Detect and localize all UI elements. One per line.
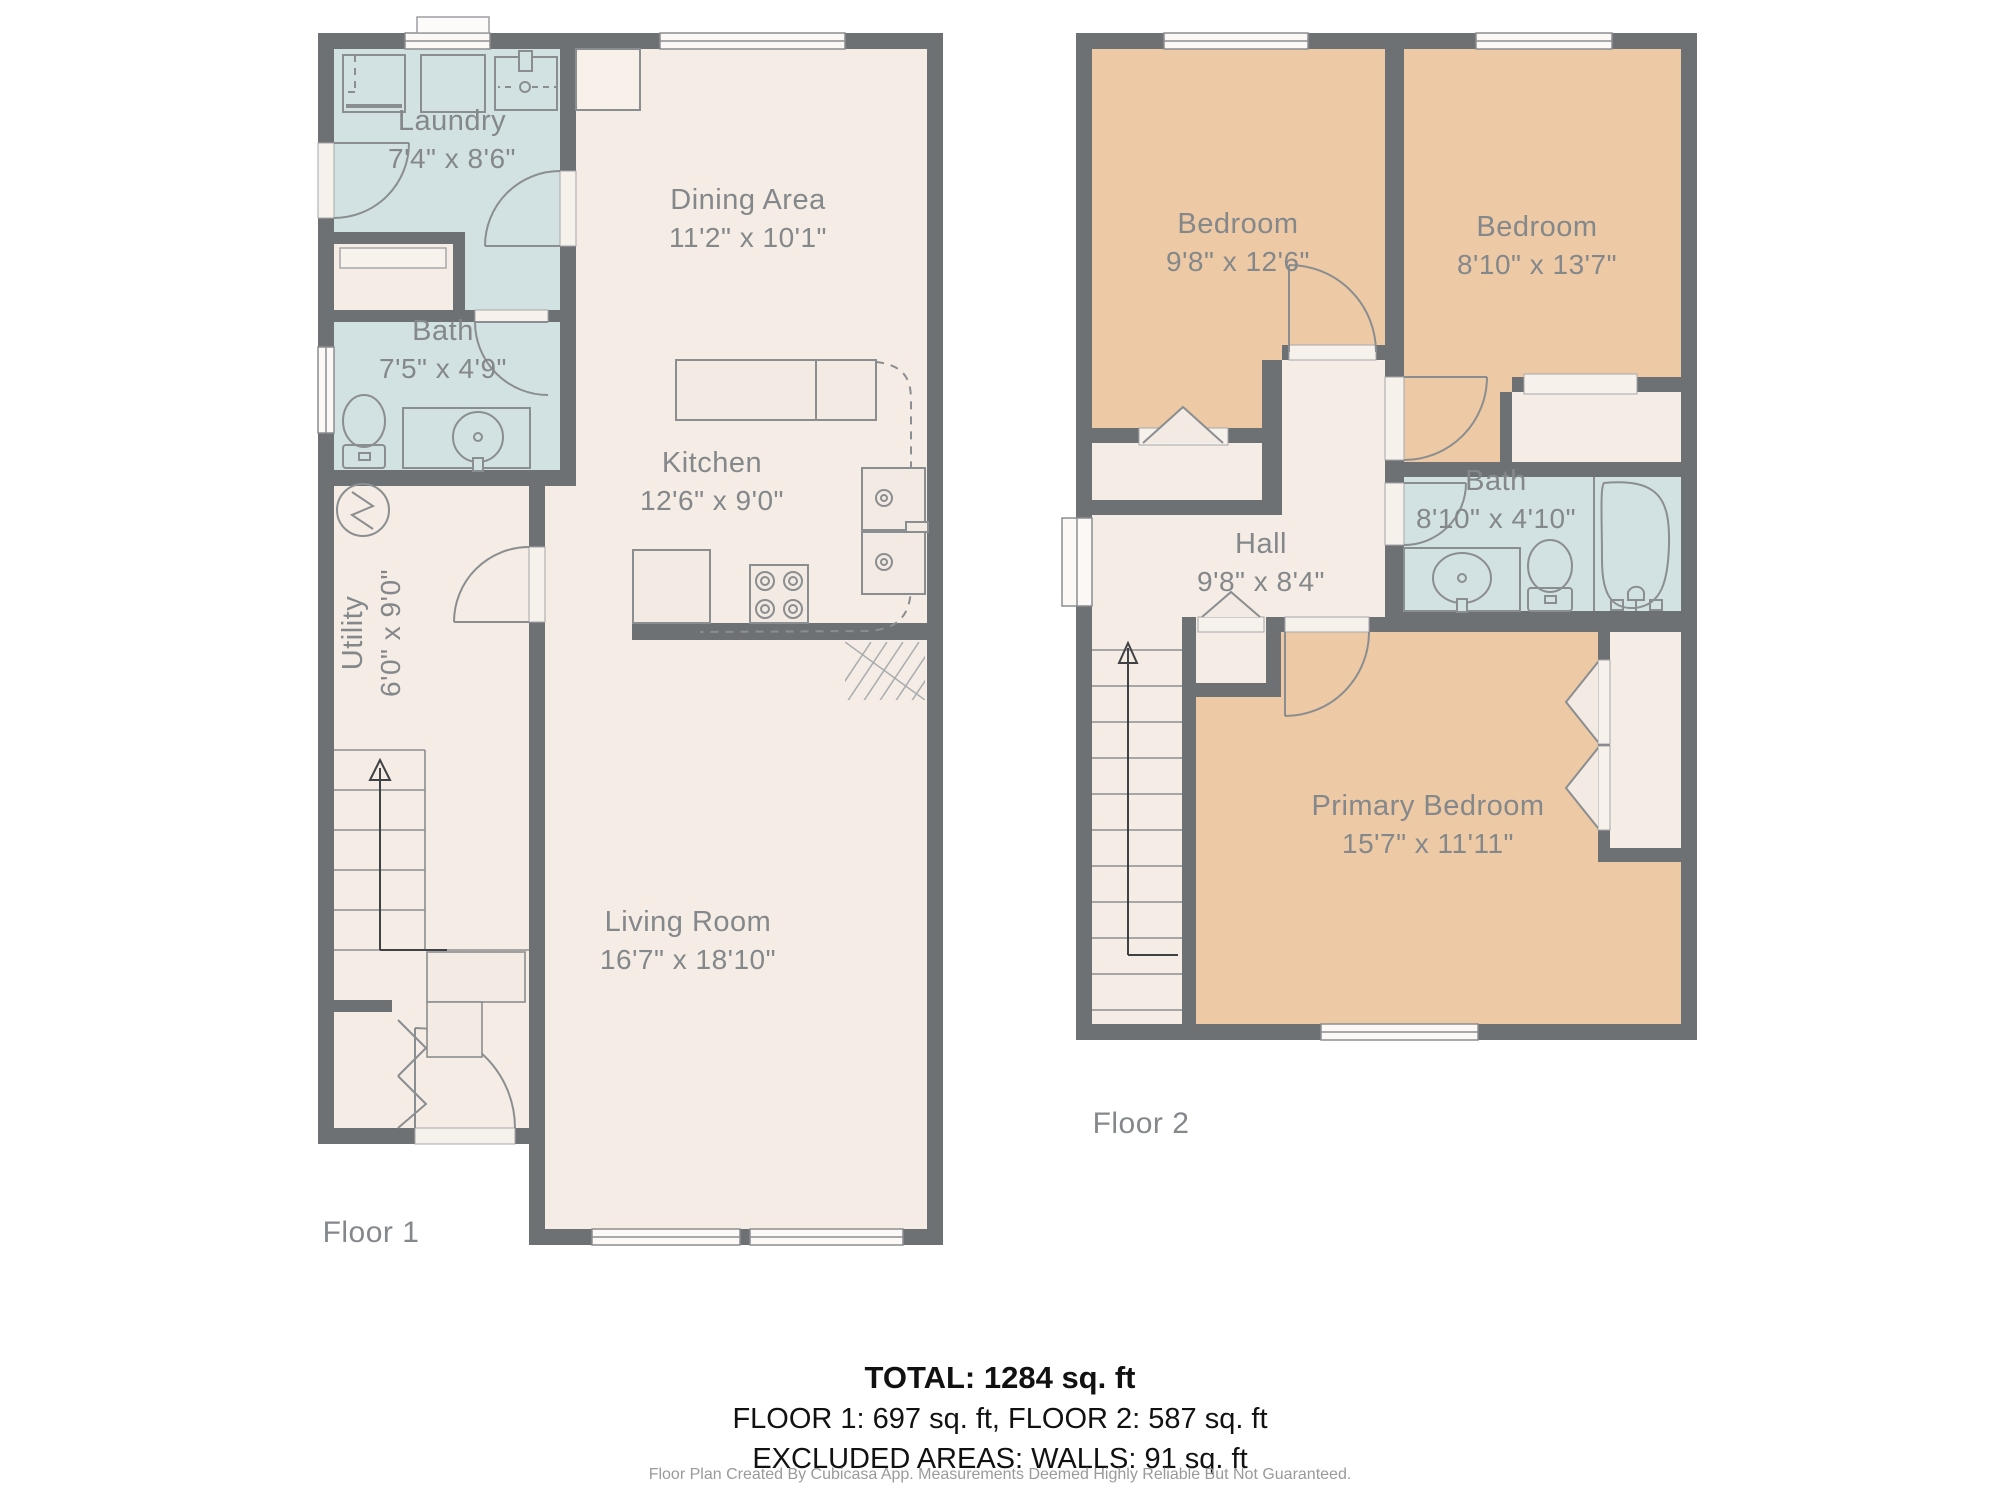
room-label-bedroom2: Bedroom 8'10" x 13'7" <box>1457 209 1617 283</box>
room-label-bath2: Bath 8'10" x 4'10" <box>1416 463 1576 537</box>
room-name: Bedroom <box>1457 209 1617 247</box>
room-name: Primary Bedroom <box>1311 788 1544 826</box>
room-name: Bath <box>379 313 507 351</box>
room-label-living: Living Room 16'7" x 18'10" <box>600 904 776 978</box>
room-name: Bath <box>1416 463 1576 501</box>
floor-plan-page: Laundry 7'4" x 8'6" Bath 7'5" x 4'9" Din… <box>0 0 2000 1500</box>
floor2-plan <box>1062 33 1697 1040</box>
room-dims: 6'0" x 9'0" <box>373 569 409 697</box>
room-dims: 16'7" x 18'10" <box>600 942 776 978</box>
room-name: Bedroom <box>1166 206 1310 244</box>
floor-plan-drawing <box>0 0 2000 1500</box>
total-area-text: TOTAL: 1284 sq. ft <box>0 1360 2000 1396</box>
room-dims: 8'10" x 4'10" <box>1416 501 1576 537</box>
refrigerator-icon <box>633 550 710 623</box>
room-label-utility: Utility 6'0" x 9'0" <box>335 569 409 697</box>
room-label-hall: Hall 9'8" x 8'4" <box>1197 526 1325 600</box>
room-label-kitchen: Kitchen 12'6" x 9'0" <box>640 445 784 519</box>
room-dims: 8'10" x 13'7" <box>1457 247 1617 283</box>
pantry-cabinet <box>576 49 640 110</box>
floor1-tag: Floor 1 <box>323 1216 420 1250</box>
disclaimer-text: Floor Plan Created By Cubicasa App. Meas… <box>0 1466 2000 1484</box>
room-name: Laundry <box>388 103 516 141</box>
room-label-bath1: Bath 7'5" x 4'9" <box>379 313 507 387</box>
floor2-tag: Floor 2 <box>1093 1107 1190 1141</box>
exterior-step <box>417 17 489 33</box>
room-label-dining: Dining Area 11'2" x 10'1" <box>669 182 827 256</box>
room-dims: 7'5" x 4'9" <box>379 351 507 387</box>
room-dims: 12'6" x 9'0" <box>640 483 784 519</box>
room-label-primary-bedroom: Primary Bedroom 15'7" x 11'11" <box>1311 788 1544 862</box>
room-dims: 7'4" x 8'6" <box>388 141 516 177</box>
room-dims: 9'8" x 12'6" <box>1166 244 1310 280</box>
room-dims: 11'2" x 10'1" <box>669 220 827 256</box>
room-name: Dining Area <box>669 182 827 220</box>
room-dims: 9'8" x 8'4" <box>1197 564 1325 600</box>
room-name: Utility <box>335 569 373 697</box>
area-summary: TOTAL: 1284 sq. ft FLOOR 1: 697 sq. ft, … <box>0 1360 2000 1476</box>
room-dims: 15'7" x 11'11" <box>1311 826 1544 862</box>
room-label-laundry: Laundry 7'4" x 8'6" <box>388 103 516 177</box>
room-name: Kitchen <box>640 445 784 483</box>
stove-icon <box>750 565 808 623</box>
kitchen-sink-icon <box>862 468 928 594</box>
floor1-plan <box>318 17 951 1245</box>
room-name: Living Room <box>600 904 776 942</box>
room-label-bedroom1: Bedroom 9'8" x 12'6" <box>1166 206 1310 280</box>
room-name: Hall <box>1197 526 1325 564</box>
kitchen-counter-icon <box>676 360 816 420</box>
floor-areas-text: FLOOR 1: 697 sq. ft, FLOOR 2: 587 sq. ft <box>0 1403 2000 1436</box>
closet-shelf <box>340 248 446 268</box>
primary-closet-floor <box>1610 632 1681 848</box>
kitchen-counter-icon <box>816 360 876 420</box>
